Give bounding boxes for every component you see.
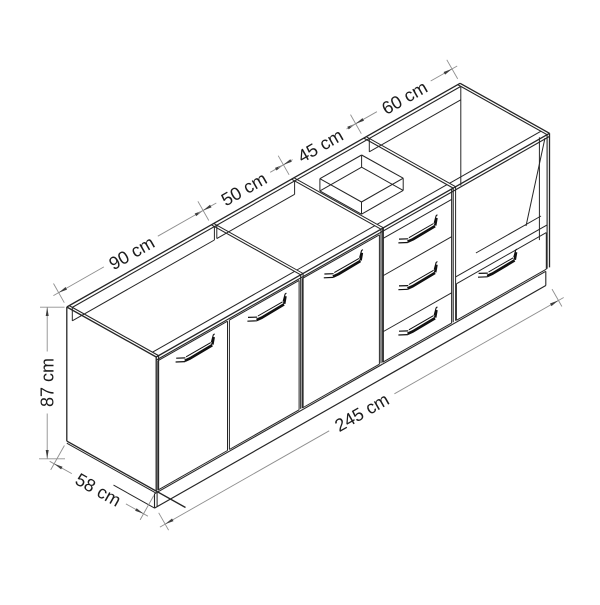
svg-text:87 cm: 87 cm (37, 358, 57, 407)
